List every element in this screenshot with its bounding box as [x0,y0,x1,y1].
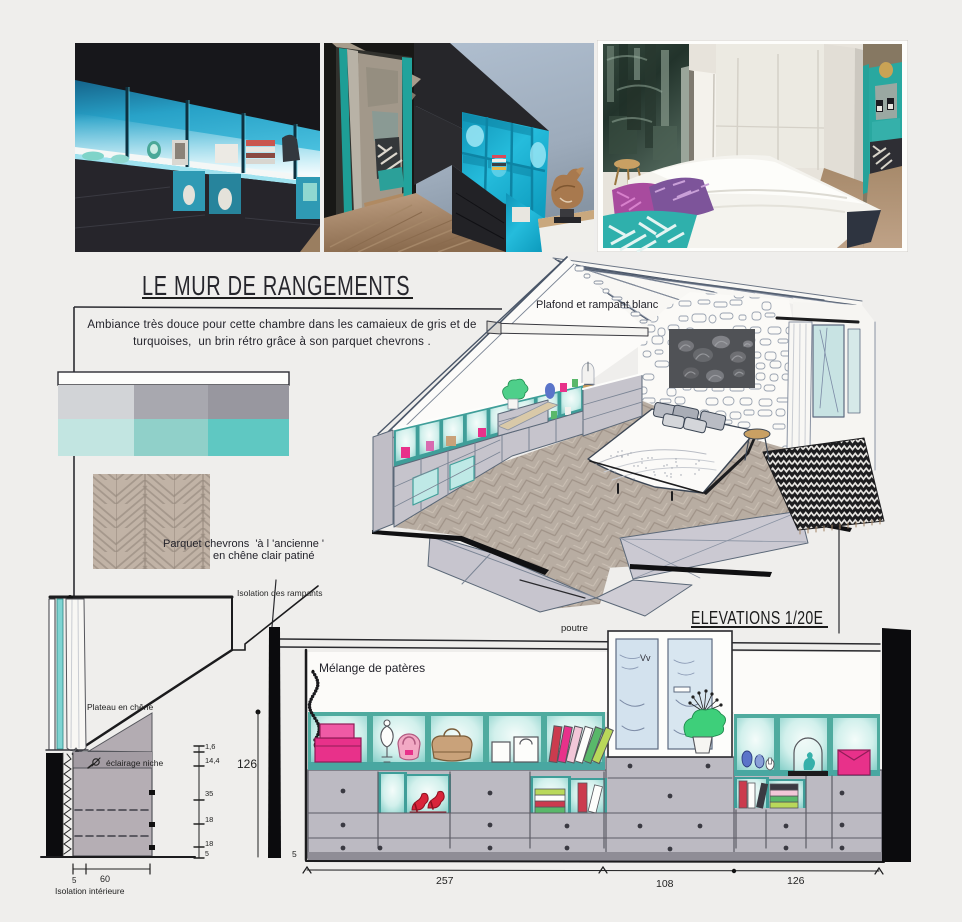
svg-text:Vv: Vv [640,653,651,663]
